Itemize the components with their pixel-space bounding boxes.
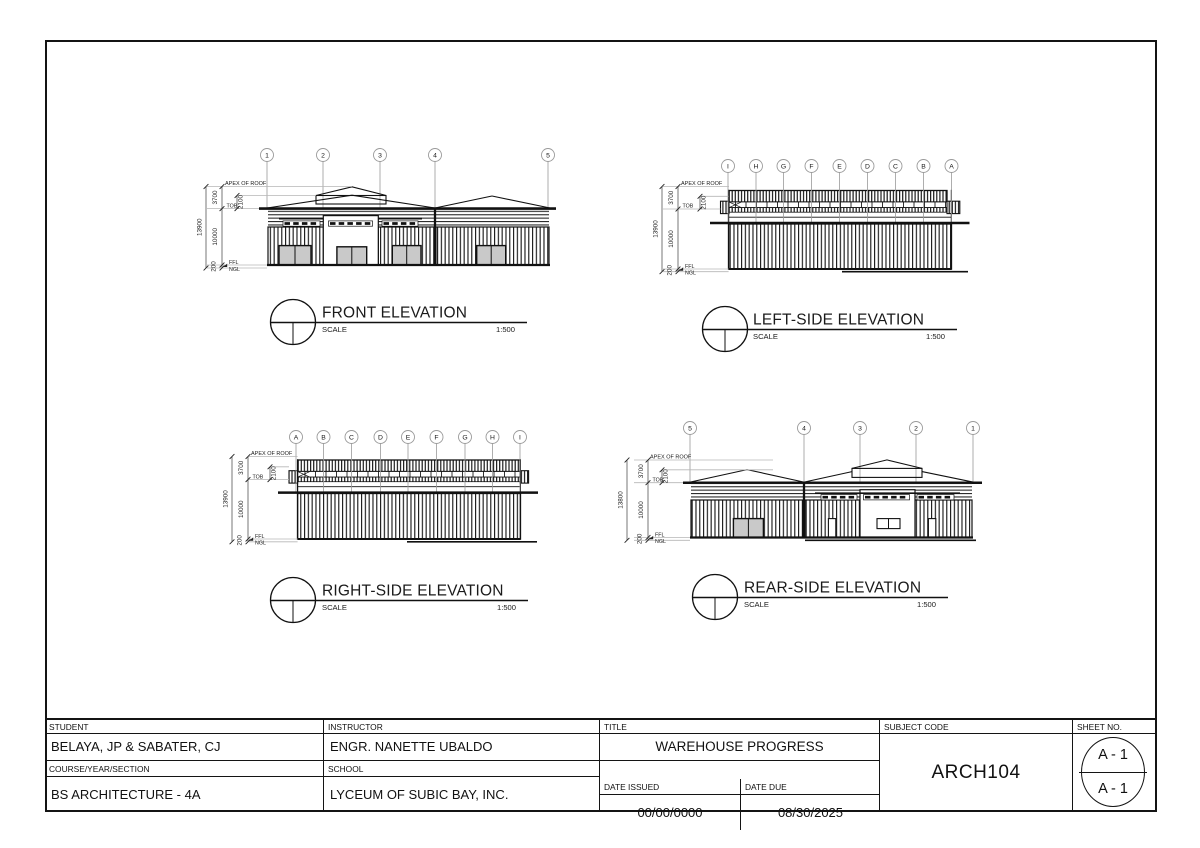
- student-value: BELAYA, JP & SABATER, CJ: [45, 734, 323, 762]
- level-ngl-label: NGL: [655, 539, 666, 545]
- door: [279, 246, 311, 265]
- dim-total: 13900: [197, 218, 204, 236]
- sheet-no-label: SHEET NO.: [1073, 720, 1155, 734]
- date-issued-value: 00/00/0000: [600, 795, 740, 831]
- title-block-sheet-cell: SHEET NO. A - 1 A - 1: [1073, 720, 1155, 812]
- door: [337, 247, 367, 265]
- level-apex-label: APEX OF ROOF: [225, 181, 267, 187]
- grid-bubble-label: C: [893, 163, 898, 170]
- grid-bubble-label: F: [809, 163, 813, 170]
- drawing-sheet: 1 2 3 4 5: [0, 0, 1200, 848]
- grid-bubble-label: C: [349, 434, 354, 441]
- dim-wall: 10000: [212, 228, 219, 246]
- rear-side-elevation: 5 4 3 2 1: [618, 422, 983, 620]
- school-value: LYCEUM OF SUBIC BAY, INC.: [324, 777, 599, 813]
- rear-title-marker: REAR-SIDE ELEVATION SCALE 1:500: [693, 575, 949, 620]
- grid-bubble-label: E: [406, 434, 411, 441]
- wall-panel: [298, 493, 521, 539]
- left-title-marker: LEFT-SIDE ELEVATION SCALE 1:500: [703, 307, 958, 352]
- level-ffl-label: FFL: [685, 264, 694, 270]
- subject-code-label: SUBJECT CODE: [880, 720, 1072, 734]
- title-block-subject-cell: SUBJECT CODE ARCH104: [880, 720, 1073, 812]
- scale-value: 1:500: [497, 603, 516, 612]
- dim-monitor: 2100: [663, 469, 670, 484]
- dim-roof: 3700: [212, 190, 219, 205]
- date-due-label: DATE DUE: [741, 779, 880, 795]
- dim-wall: 10000: [638, 501, 645, 519]
- right-walls: [278, 493, 538, 542]
- grid-bubble-label: H: [754, 163, 759, 170]
- dim-monitor: 2100: [238, 195, 245, 210]
- grid-bubble-label: D: [865, 163, 870, 170]
- roof-monitor: [316, 196, 386, 205]
- scale-label: SCALE: [322, 603, 347, 612]
- dim-total: 13900: [223, 490, 230, 508]
- sheet-number-circle: A - 1 A - 1: [1081, 737, 1145, 807]
- front-walls: [259, 209, 556, 265]
- grid-bubble-label: D: [378, 434, 383, 441]
- left-dimensions: 13900 3700 10000 200 2100 APEX OF ROOF T…: [653, 181, 730, 277]
- roof-fascia: [729, 191, 947, 203]
- dim-roof: 3700: [668, 190, 675, 205]
- right-title-marker: RIGHT-SIDE ELEVATION SCALE 1:500: [271, 578, 529, 623]
- grid-bubble-label: I: [519, 434, 521, 441]
- subject-code-value: ARCH104: [880, 734, 1072, 813]
- scale-label: SCALE: [322, 325, 347, 334]
- front-title-marker: FRONT ELEVATION SCALE 1:500: [271, 300, 528, 345]
- title-block-student-cell: STUDENT BELAYA, JP & SABATER, CJ COURSE/…: [45, 720, 324, 812]
- grid-bubble-label: 2: [321, 152, 325, 159]
- course-value: BS ARCHITECTURE - 4A: [45, 777, 323, 813]
- scale-value: 1:500: [496, 325, 515, 334]
- view-title: REAR-SIDE ELEVATION: [744, 580, 921, 597]
- front-grid-lines: [267, 162, 548, 209]
- rear-walls: [683, 483, 982, 541]
- level-apex-label: APEX OF ROOF: [650, 454, 692, 460]
- dim-plinth: 200: [637, 533, 644, 544]
- grid-bubble-label: 4: [433, 152, 437, 159]
- view-title: LEFT-SIDE ELEVATION: [753, 312, 924, 329]
- instructor-value: ENGR. NANETTE UBALDO: [324, 734, 599, 762]
- elevations-drawing: 1 2 3 4 5: [0, 0, 1200, 718]
- level-tob-label: TOB: [227, 203, 238, 209]
- scale-value: 1:500: [926, 332, 945, 341]
- school-label: SCHOOL: [324, 761, 599, 777]
- front-grid-bubbles: 1 2 3 4 5: [261, 149, 555, 162]
- title-block-instructor-cell: INSTRUCTOR ENGR. NANETTE UBALDO SCHOOL L…: [324, 720, 600, 812]
- title-block: STUDENT BELAYA, JP & SABATER, CJ COURSE/…: [45, 718, 1155, 810]
- roof-monitor: [852, 468, 922, 477]
- sheet-number-bottom: A - 1: [1082, 772, 1144, 806]
- level-ngl-label: NGL: [229, 267, 240, 273]
- grid-bubble-label: H: [490, 434, 495, 441]
- date-issued-label: DATE ISSUED: [600, 779, 740, 795]
- level-ffl-label: FFL: [229, 260, 238, 266]
- window: [877, 519, 900, 529]
- dim-roof: 3700: [238, 460, 245, 475]
- clerestory-windows: [298, 472, 520, 478]
- sheet-number-top: A - 1: [1082, 738, 1144, 772]
- title-block-title-cell: TITLE WAREHOUSE PROGRESS DATE ISSUED 00/…: [600, 720, 880, 812]
- rear-grid-bubbles: 5 4 3 2 1: [684, 422, 980, 435]
- clerestory-windows: [729, 202, 947, 208]
- roof-fascia: [298, 460, 520, 472]
- drawing-title-value: WAREHOUSE PROGRESS: [600, 734, 879, 762]
- door: [928, 519, 935, 538]
- level-apex-label: APEX OF ROOF: [681, 181, 723, 187]
- grid-bubble-label: 4: [802, 425, 806, 432]
- dim-monitor: 2100: [271, 466, 278, 481]
- grid-bubble-label: B: [921, 163, 926, 170]
- dim-plinth: 200: [667, 265, 674, 276]
- grid-bubble-label: 5: [546, 152, 550, 159]
- view-title: FRONT ELEVATION: [322, 305, 467, 322]
- view-title: RIGHT-SIDE ELEVATION: [322, 583, 504, 600]
- grid-bubble-label: F: [434, 434, 438, 441]
- scale-label: SCALE: [753, 332, 778, 341]
- grid-bubble-label: A: [949, 163, 954, 170]
- door: [477, 246, 506, 265]
- dates-row: DATE ISSUED 00/00/0000 DATE DUE 08/30/20…: [600, 779, 879, 812]
- course-label: COURSE/YEAR/SECTION: [45, 761, 323, 777]
- student-label: STUDENT: [45, 720, 323, 734]
- right-dimensions: 13900 3700 10000 200 2100 APEX OF ROOF T…: [223, 451, 298, 547]
- clerestory-band: [691, 484, 803, 500]
- date-due-cell: DATE DUE 08/30/2025: [741, 779, 880, 830]
- date-due-value: 08/30/2025: [741, 795, 880, 831]
- grid-bubble-label: 3: [858, 425, 862, 432]
- grid-bubble-label: 3: [378, 152, 382, 159]
- wall-panel: [729, 224, 952, 269]
- dim-monitor: 2100: [701, 195, 708, 210]
- left-side-elevation: I H G F E D C B A: [653, 160, 970, 352]
- roof-end-cap: [520, 471, 529, 483]
- left-grid-bubbles: I H G F E D C B A: [722, 160, 959, 173]
- grid-bubble-label: G: [781, 163, 786, 170]
- scale-label: SCALE: [744, 600, 769, 609]
- level-tob-label: TOB: [253, 474, 264, 480]
- roof-end-cap: [947, 201, 960, 213]
- dim-plinth: 200: [237, 535, 244, 546]
- scale-value: 1:500: [917, 600, 936, 609]
- date-issued-cell: DATE ISSUED 00/00/0000: [600, 779, 741, 830]
- dim-plinth: 200: [211, 261, 218, 272]
- level-ffl-label: FFL: [255, 534, 264, 540]
- level-ngl-label: NGL: [255, 540, 266, 546]
- grid-bubble-label: 5: [688, 425, 692, 432]
- instructor-label: INSTRUCTOR: [324, 720, 599, 734]
- grid-bubble-label: E: [837, 163, 842, 170]
- dim-total: 13900: [653, 220, 660, 238]
- rear-roof: [690, 460, 973, 482]
- level-tob-label: TOB: [683, 204, 694, 210]
- door: [392, 246, 421, 265]
- grid-bubble-label: A: [294, 434, 299, 441]
- door: [828, 519, 835, 538]
- dim-roof: 3700: [638, 464, 645, 479]
- left-walls: [710, 223, 970, 272]
- front-elevation: 1 2 3 4 5: [197, 149, 557, 345]
- level-ffl-label: FFL: [655, 532, 664, 538]
- dim-wall: 10000: [668, 230, 675, 248]
- level-apex-label: APEX OF ROOF: [251, 451, 293, 457]
- grid-bubble-label: B: [321, 434, 326, 441]
- front-roof: [267, 187, 550, 208]
- level-tob-label: TOB: [653, 477, 664, 483]
- rear-grid-lines: [690, 435, 973, 483]
- grid-bubble-label: 2: [914, 425, 918, 432]
- level-ngl-label: NGL: [685, 270, 696, 276]
- right-side-elevation: A B C D E F G H I: [223, 431, 539, 623]
- dim-wall: 10000: [238, 500, 245, 518]
- grid-bubble-label: 1: [265, 152, 269, 159]
- grid-bubble-label: G: [462, 434, 467, 441]
- dim-total: 13800: [618, 491, 625, 509]
- door: [733, 519, 763, 538]
- right-grid-bubbles: A B C D E F G H I: [290, 431, 527, 444]
- title-label: TITLE: [600, 720, 879, 734]
- grid-bubble-label: I: [727, 163, 729, 170]
- grid-bubble-label: 1: [971, 425, 975, 432]
